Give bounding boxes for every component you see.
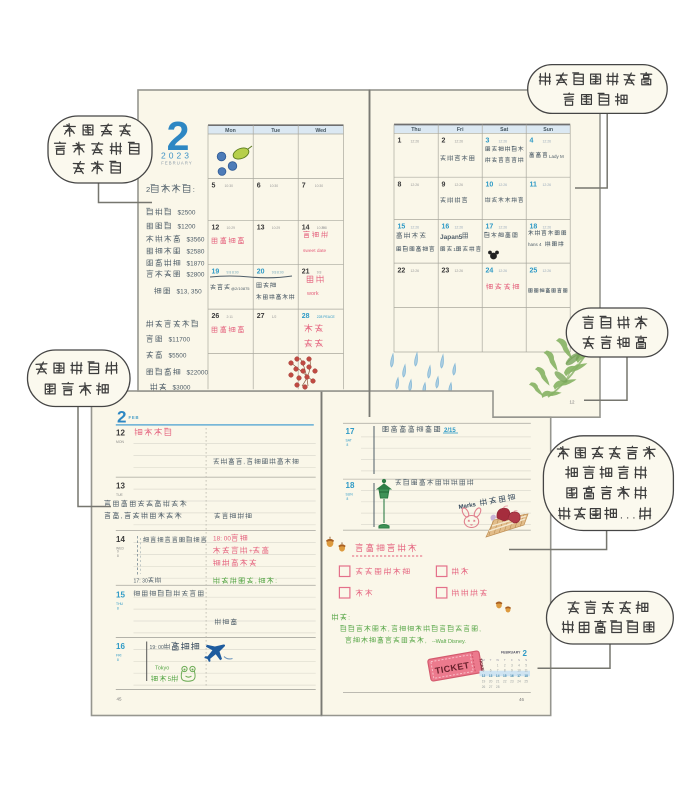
svg-text:FEBRUARY: FEBRUARY [501,651,521,655]
svg-text:12: 12 [570,400,576,405]
svg-text:9: 9 [442,182,446,189]
svg-text:7: 7 [302,183,306,190]
svg-text:8: 8 [347,497,349,501]
svg-text:23: 23 [442,267,450,274]
svg-text:6: 6 [490,669,492,673]
svg-text:27: 27 [257,313,265,320]
svg-text:MON: MON [116,440,124,444]
svg-text:25: 25 [530,267,538,274]
svg-text:12:26: 12:26 [499,139,508,143]
svg-text:5: 5 [483,669,485,673]
svg-text:2: 2 [146,185,150,194]
svg-text:10: 10 [517,669,521,673]
svg-text:21: 21 [496,680,500,684]
svg-text:0: 0 [201,249,205,256]
svg-text:9:8: 9:8 [322,226,327,230]
svg-text:0: 0 [198,289,202,296]
svg-text:0: 0 [183,353,187,360]
svg-text:9:8: 9:8 [317,270,322,274]
svg-text:Fri: Fri [457,127,464,133]
svg-text:5: 5 [212,183,216,190]
svg-text::: : [139,578,140,584]
svg-text:.: . [632,509,635,521]
svg-text:11: 11 [524,669,528,673]
svg-text:3: 3 [486,138,490,145]
svg-text:24: 24 [517,680,521,684]
svg-text:SUN: SUN [346,493,354,497]
svg-text:0: 0 [192,224,196,231]
svg-text:9: 9 [511,669,513,673]
svg-text:16: 16 [116,642,125,651]
svg-text:2: 2 [442,138,446,145]
svg-text:W: W [496,658,499,662]
svg-text:work: work [306,291,319,297]
svg-text:9: 9 [117,550,119,554]
svg-text:22: 22 [503,680,507,684]
svg-text:21: 21 [302,269,310,276]
svg-text:TUE: TUE [116,493,124,497]
svg-text:14: 14 [496,674,500,678]
svg-text:--Walt Disney.: --Walt Disney. [432,639,466,645]
svg-text:1/2: 1/2 [272,315,277,319]
svg-text:Sun: Sun [543,127,553,133]
svg-text:0: 0 [145,578,148,584]
svg-text:.: . [626,509,629,521]
svg-text:15: 15 [398,224,406,231]
svg-text:8: 8 [117,607,119,611]
svg-text:+: + [249,548,253,555]
svg-text:23: 23 [510,680,514,684]
svg-text:8: 8 [398,182,402,189]
svg-text:15: 15 [116,591,125,600]
svg-text:1: 1 [453,247,456,252]
svg-text:hans 4: hans 4 [528,242,542,247]
svg-text:12:26: 12:26 [455,183,464,187]
svg-text:2: 2 [504,663,506,667]
svg-text:12: 12 [212,224,220,231]
svg-text:0: 0 [161,645,164,651]
svg-text:3: 3 [511,663,513,667]
svg-text:T: T [504,658,506,662]
svg-text:12: 12 [116,429,125,438]
svg-text:24: 24 [486,267,494,274]
svg-text:4: 4 [530,138,534,145]
svg-text:27: 27 [489,685,493,689]
svg-text:8:00: 8:00 [232,270,239,274]
svg-text:16: 16 [442,224,450,231]
svg-text:1: 1 [497,663,499,667]
svg-text:20: 20 [489,680,493,684]
svg-text:11: 11 [530,182,538,189]
svg-text:12:26: 12:26 [411,183,420,187]
svg-text:0: 0 [201,261,205,268]
svg-text:18: 18 [524,674,528,678]
svg-text:17: 17 [517,674,521,678]
svg-text:12:26: 12:26 [499,183,508,187]
svg-text:Wed: Wed [315,128,326,134]
svg-text:13: 13 [116,482,125,491]
svg-text:25: 25 [524,680,528,684]
svg-text:12:26: 12:26 [499,269,508,273]
svg-text:Thu: Thu [411,127,421,133]
svg-text:45: 45 [117,697,123,702]
svg-text:0: 0 [201,272,205,279]
svg-text:4: 4 [518,663,520,667]
svg-text:8: 8 [117,658,119,662]
svg-text:12:26: 12:26 [411,139,420,143]
svg-text:SAT: SAT [346,439,352,443]
svg-text:12:26: 12:26 [543,139,552,143]
svg-text:0: 0 [201,237,205,244]
svg-text:18: 18 [346,481,355,490]
svg-text:28: 28 [302,313,310,320]
svg-text:12: 12 [482,674,486,678]
svg-text:2: 2 [117,407,126,426]
svg-text:10:30: 10:30 [270,184,279,188]
svg-text:Lady M: Lady M [549,154,564,159]
svg-text:19: 19 [212,269,220,276]
svg-text:9:8: 9:8 [227,270,232,274]
svg-text:12:26: 12:26 [411,269,420,273]
svg-text:Japan5: Japan5 [440,234,463,241]
svg-text:17: 17 [346,427,355,436]
svg-text::: : [155,645,156,651]
svg-text:8: 8 [504,669,506,673]
svg-text:@2/10875: @2/10875 [231,286,250,291]
svg-text:10:29: 10:29 [272,226,281,230]
svg-text:15: 15 [503,674,507,678]
svg-text:28: 28 [496,685,500,689]
svg-text:8:00: 8:00 [277,270,284,274]
svg-text:8: 8 [347,443,349,447]
svg-text:,: , [187,289,189,296]
svg-text:.: . [620,509,623,521]
svg-text:10:30: 10:30 [225,184,234,188]
svg-text:THU: THU [116,602,124,606]
svg-text:10: 10 [486,182,494,189]
svg-text:22: 22 [398,267,406,274]
svg-text:12:26: 12:26 [411,225,420,229]
svg-text:0: 0 [192,210,196,217]
svg-text:0: 0 [187,385,191,392]
svg-text:17: 17 [486,224,494,231]
svg-text:19: 19 [482,680,486,684]
svg-text:FEB: FEB [129,415,140,420]
svg-text:12:26: 12:26 [499,225,508,229]
svg-text:2: 2 [523,649,528,658]
svg-text:6: 6 [257,183,261,190]
svg-text:0: 0 [187,337,191,344]
svg-text:Sat: Sat [500,127,508,133]
svg-text:FEBRUARY: FEBRUARY [161,160,193,165]
svg-text:14: 14 [116,535,125,544]
svg-text:S: S [518,658,520,662]
svg-text:9:8: 9:8 [272,270,277,274]
svg-text::: : [193,185,195,194]
svg-text:1: 1 [398,138,402,145]
svg-text:26: 26 [482,685,486,689]
svg-text:12:26: 12:26 [455,225,464,229]
svg-text:26: 26 [212,313,220,320]
svg-text:FRI: FRI [116,654,122,658]
svg-text:12:26: 12:26 [455,139,464,143]
svg-text:2023: 2023 [161,151,192,161]
svg-text:12:26: 12:26 [543,269,552,273]
svg-text:13: 13 [257,224,265,231]
svg-text:T: T [490,658,492,662]
svg-text:2:11: 2:11 [227,315,233,319]
svg-text:Tue: Tue [271,128,280,134]
svg-text::: : [220,536,222,543]
svg-text:10:30: 10:30 [315,184,324,188]
svg-text:12:26: 12:26 [455,269,464,273]
svg-text:sweet date: sweet date [303,248,327,254]
svg-text:F: F [511,658,513,662]
svg-text:Tokyo: Tokyo [155,666,169,672]
svg-text:18: 18 [530,224,538,231]
svg-text:46: 46 [519,697,525,702]
svg-text:S: S [525,658,527,662]
svg-text:8: 8 [117,554,119,558]
svg-text:10:29: 10:29 [227,226,236,230]
svg-text:14: 14 [302,224,310,231]
svg-text:5: 5 [525,663,527,667]
svg-text:12:26: 12:26 [543,183,552,187]
svg-text:Mon: Mon [225,128,236,134]
svg-text:228 PEACE: 228 PEACE [317,315,336,319]
svg-text:12:26: 12:26 [543,225,552,229]
svg-text:16: 16 [510,674,514,678]
svg-text:13: 13 [489,674,493,678]
svg-text:7: 7 [497,669,499,673]
svg-text:0: 0 [227,536,231,543]
svg-text:20: 20 [257,269,265,276]
